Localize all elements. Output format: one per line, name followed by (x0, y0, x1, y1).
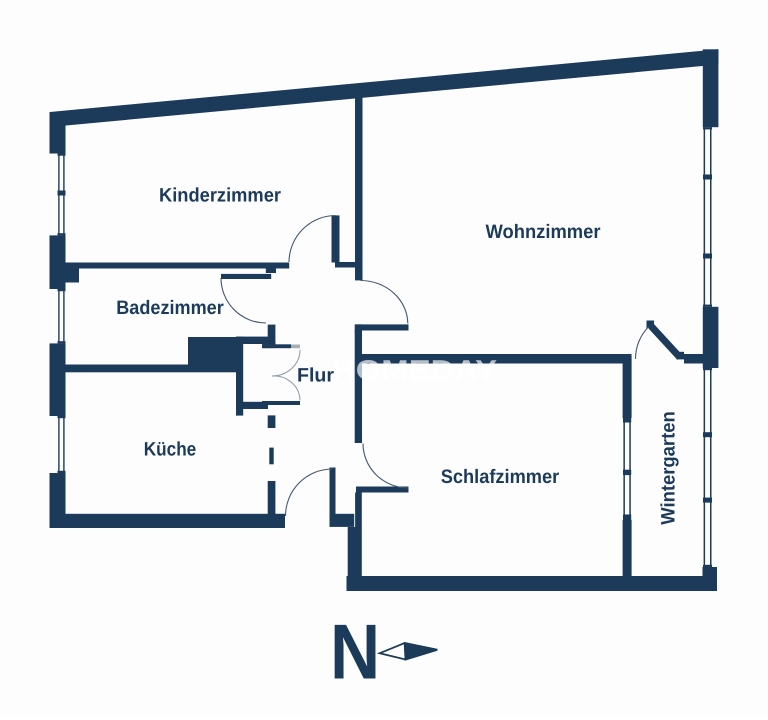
svg-text:Schlafzimmer: Schlafzimmer (441, 466, 560, 488)
svg-text:Flur: Flur (297, 364, 334, 386)
svg-text:Wohnzimmer: Wohnzimmer (486, 221, 601, 243)
svg-text:HOMEDAY: HOMEDAY (332, 355, 497, 386)
svg-text:Kinderzimmer: Kinderzimmer (159, 185, 281, 207)
svg-text:N: N (330, 608, 380, 696)
svg-text:Küche: Küche (144, 438, 197, 460)
svg-text:Badezimmer: Badezimmer (116, 297, 224, 319)
svg-text:Wintergarten: Wintergarten (658, 411, 680, 525)
